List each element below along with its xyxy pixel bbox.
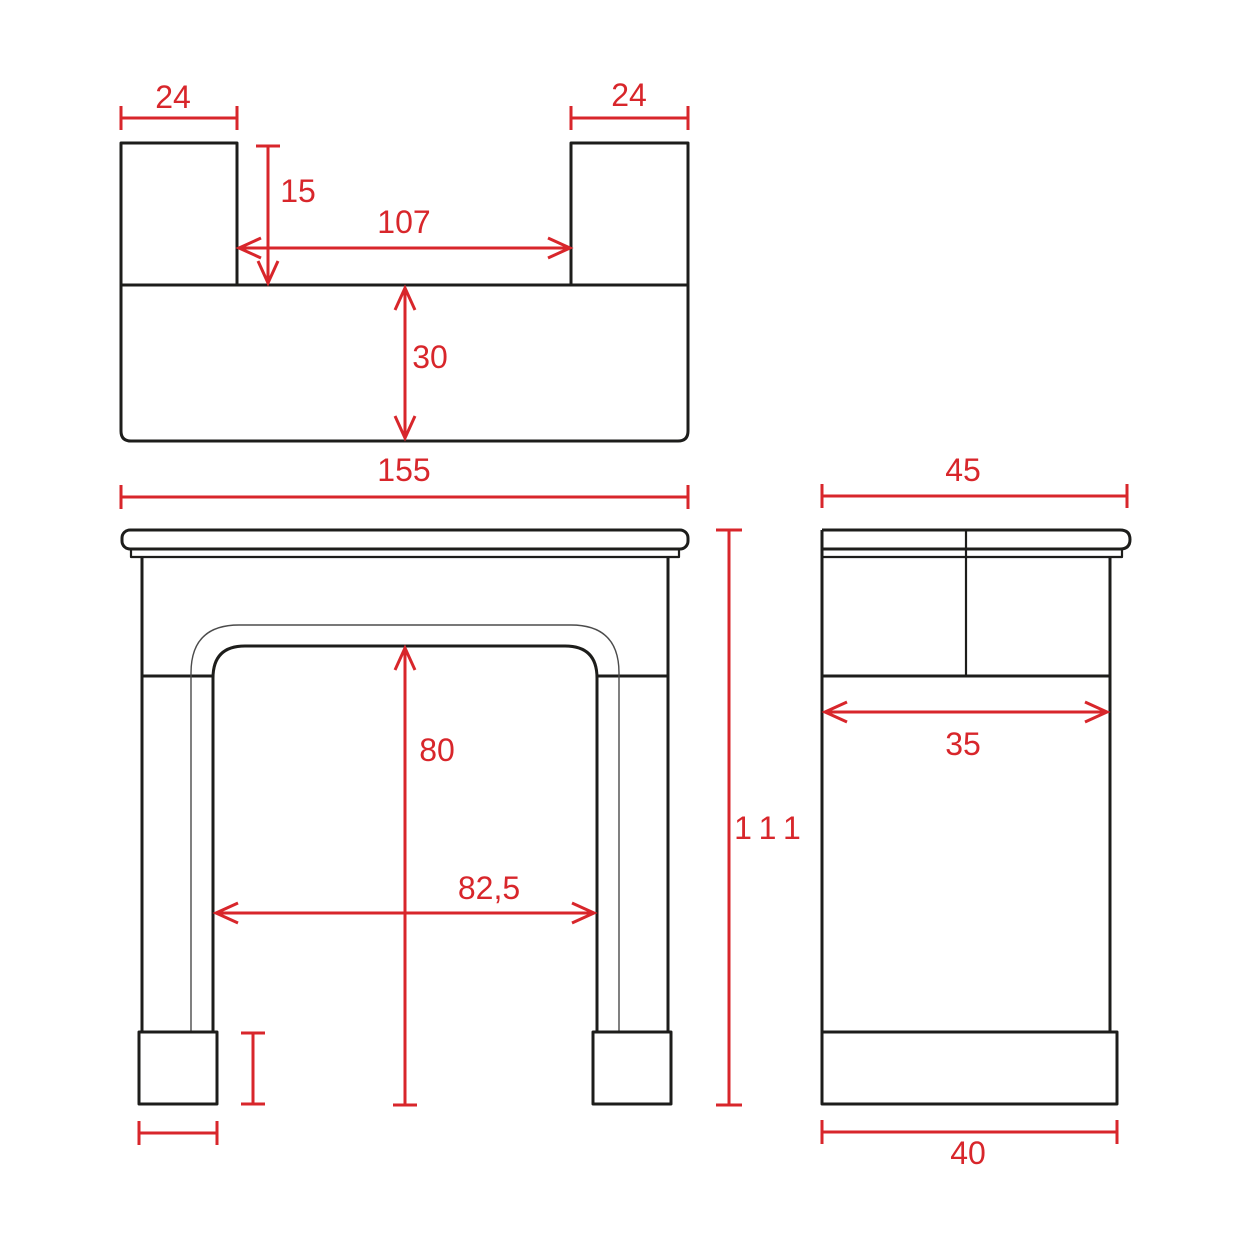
side-view: 45 35 40 xyxy=(822,452,1130,1171)
dim-label-mid-depth: 35 xyxy=(945,726,981,762)
dim-label-post-depth: 15 xyxy=(280,173,316,209)
technical-drawing: 24 24 15 107 30 xyxy=(0,0,1250,1250)
dim-post-width-right: 24 xyxy=(571,77,688,130)
top-view-right-post-outline xyxy=(571,143,688,285)
dim-label-overall-height: 111 xyxy=(734,810,810,846)
dim-mid-depth: 35 xyxy=(825,702,1107,762)
side-plinth-outline xyxy=(822,1032,1117,1104)
dim-band-depth: 30 xyxy=(395,288,448,438)
front-left-foot-outline xyxy=(139,1032,217,1104)
front-mantel-shelf-outline xyxy=(122,530,688,549)
dim-label-base-depth: 40 xyxy=(950,1135,986,1171)
dim-shelf-depth: 45 xyxy=(822,452,1127,508)
dim-label-opening-height: 80 xyxy=(419,732,455,768)
side-shelf-outline xyxy=(822,530,1130,549)
dim-overall-width: 155 xyxy=(121,452,688,509)
dim-label-inner-span: 107 xyxy=(377,204,430,240)
dim-opening-height: 80 xyxy=(393,648,455,1105)
dim-post-depth: 15 xyxy=(256,146,316,283)
top-view: 24 24 15 107 30 xyxy=(121,77,688,441)
dim-label-post-width-right: 24 xyxy=(611,77,647,113)
dim-label-post-width-left: 24 xyxy=(155,79,191,115)
dim-overall-height: 111 xyxy=(716,530,810,1105)
front-right-foot-outline xyxy=(593,1032,671,1104)
dim-post-width-left: 24 xyxy=(121,79,237,130)
dim-base-depth: 40 xyxy=(822,1120,1117,1171)
front-view: 155 80 82,5 xyxy=(121,452,810,1145)
dim-label-opening-width: 82,5 xyxy=(458,870,520,906)
dim-label-overall-width: 155 xyxy=(377,452,430,488)
dim-label-band-depth: 30 xyxy=(412,339,448,375)
dim-inner-span: 107 xyxy=(239,204,570,258)
dim-label-shelf-depth: 45 xyxy=(945,452,981,488)
dim-foot-width-unlabeled xyxy=(139,1121,217,1145)
top-view-left-post-outline xyxy=(121,143,237,285)
dim-foot-height-unlabeled xyxy=(241,1033,265,1104)
